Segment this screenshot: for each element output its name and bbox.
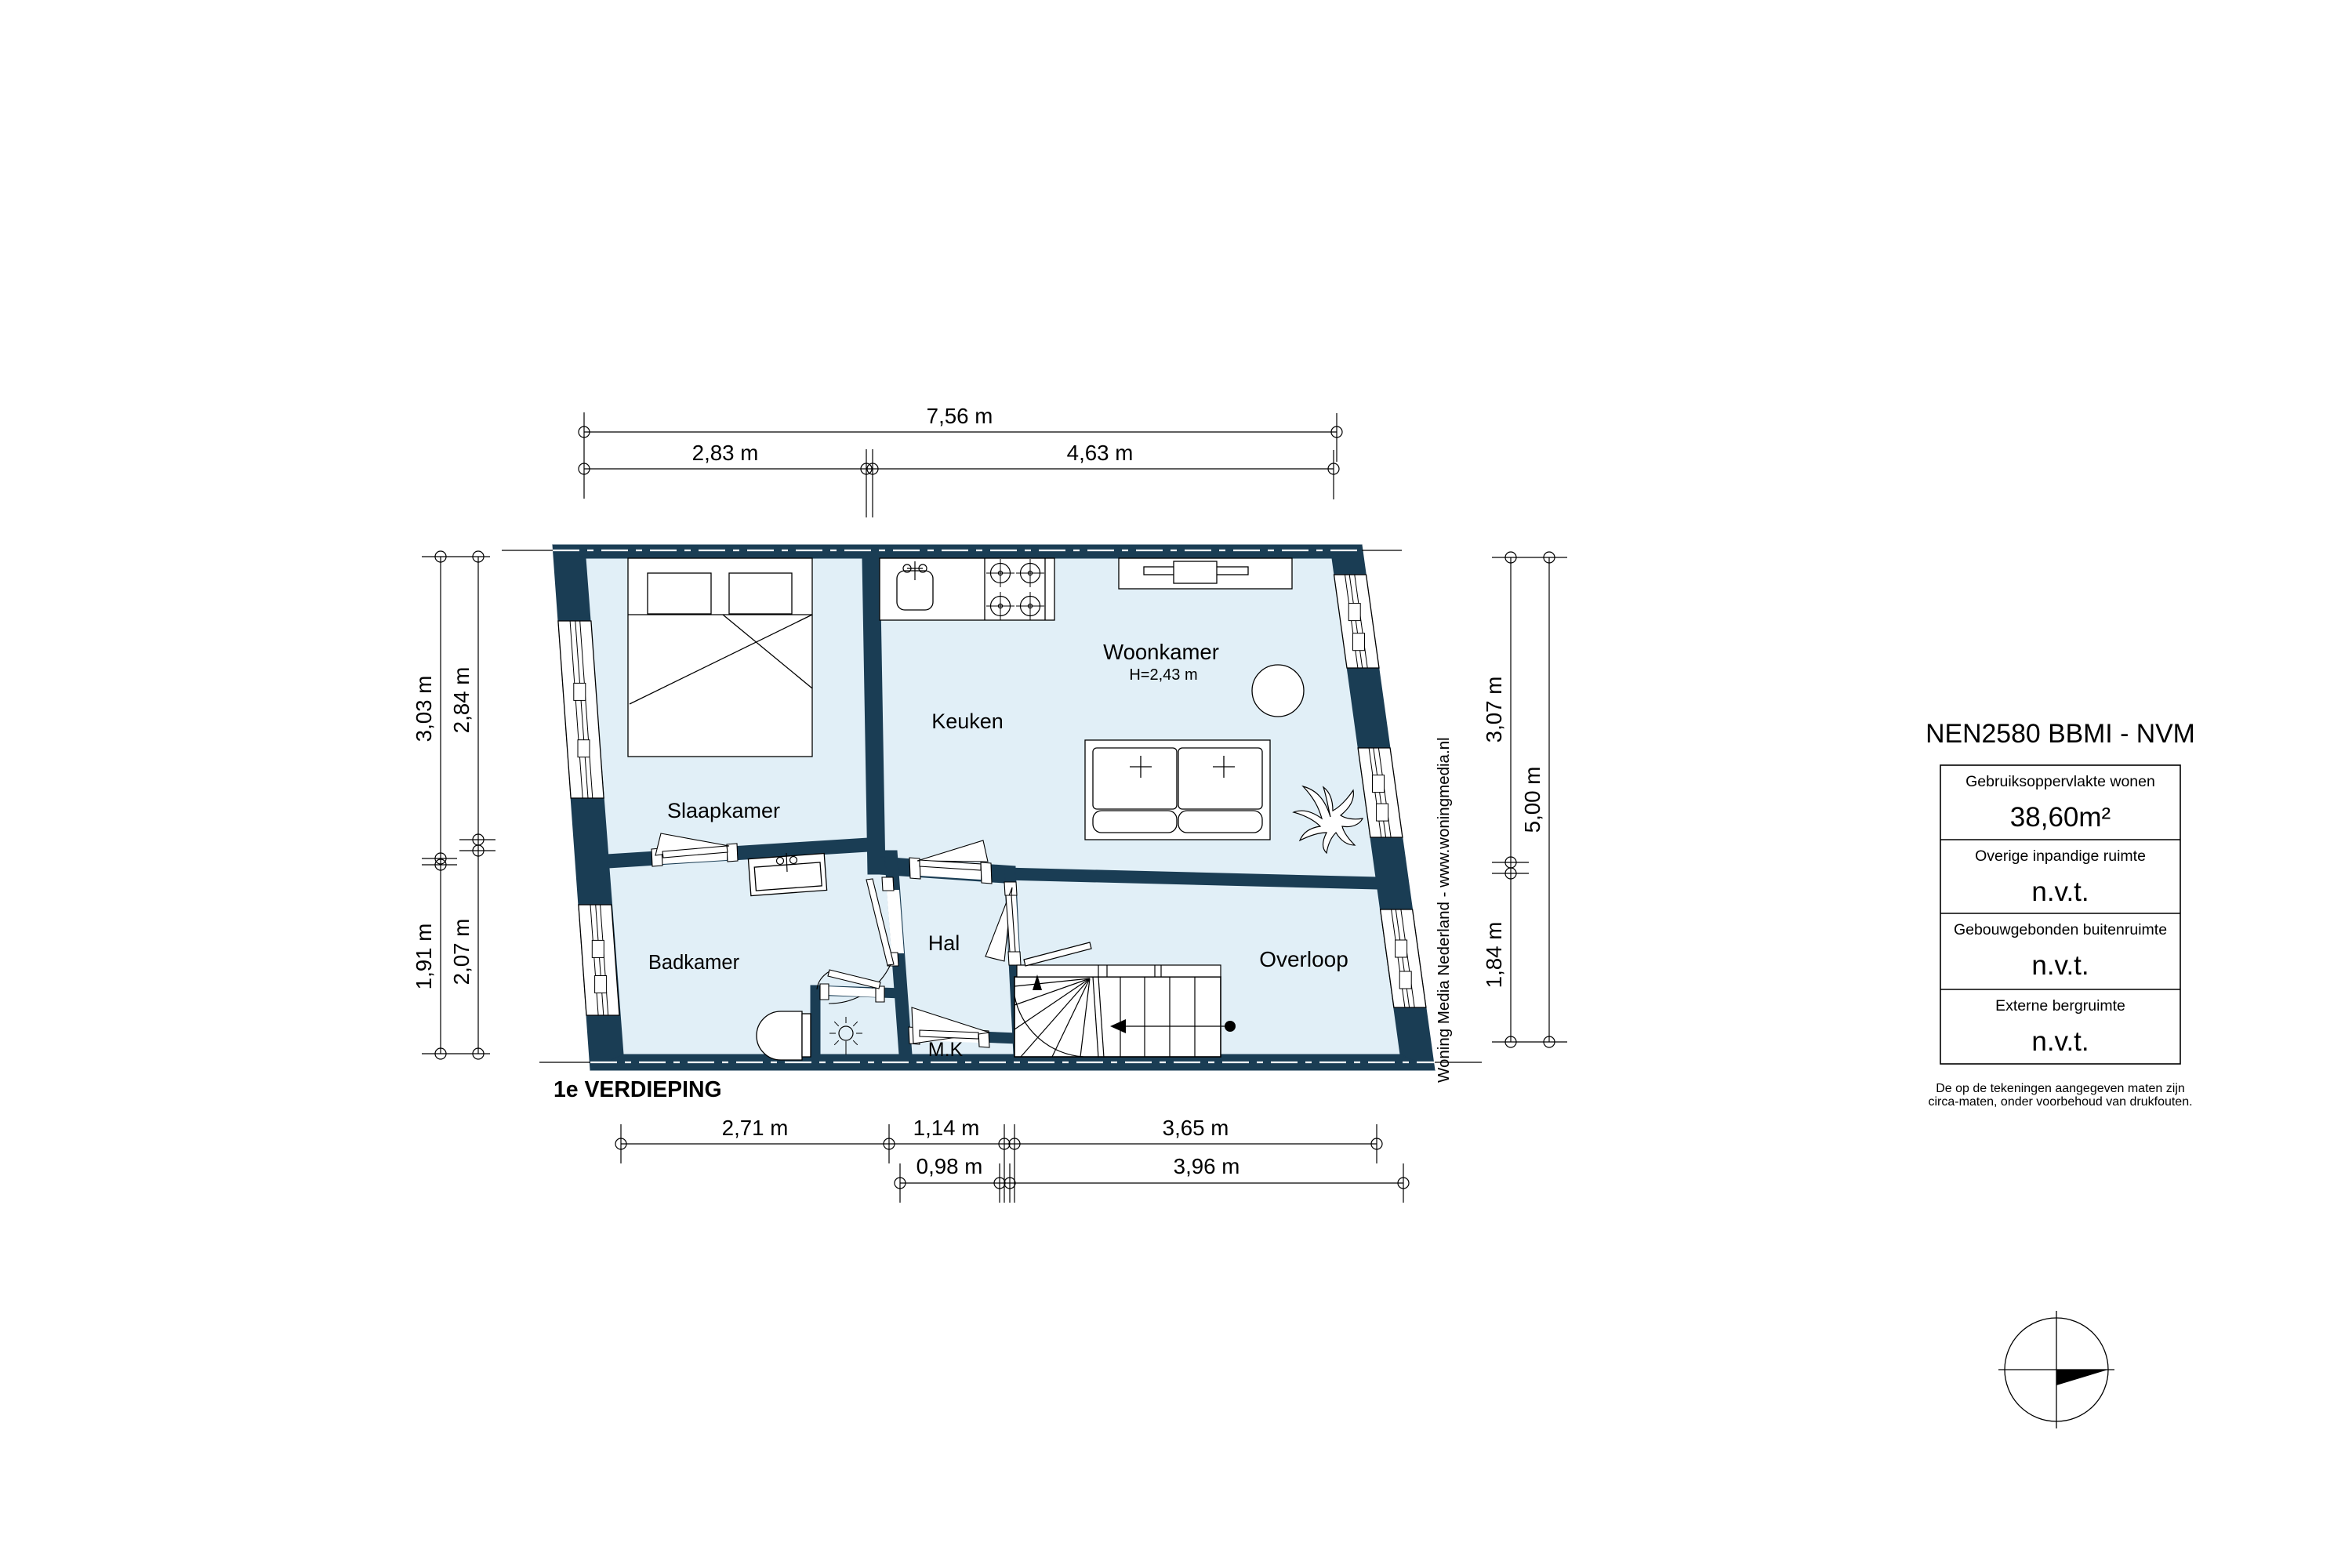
svg-text:Gebruiksoppervlakte wonen: Gebruiksoppervlakte wonen xyxy=(1965,773,2155,790)
svg-text:1,14 m: 1,14 m xyxy=(913,1116,980,1140)
svg-text:Woonkamer: Woonkamer xyxy=(1103,640,1219,664)
svg-text:1,84 m: 1,84 m xyxy=(1482,922,1506,989)
svg-text:Keuken: Keuken xyxy=(931,710,1004,733)
svg-text:2,83 m: 2,83 m xyxy=(692,441,759,465)
svg-text:n.v.t.: n.v.t. xyxy=(2031,950,2089,981)
svg-text:2,71 m: 2,71 m xyxy=(722,1116,789,1140)
svg-text:5,00 m: 5,00 m xyxy=(1520,767,1544,833)
svg-text:Gebouwgebonden buitenruimte: Gebouwgebonden buitenruimte xyxy=(1954,921,2167,938)
svg-text:7,56 m: 7,56 m xyxy=(927,404,993,428)
svg-text:0,98 m: 0,98 m xyxy=(916,1154,983,1178)
svg-text:38,60m²: 38,60m² xyxy=(2010,802,2111,833)
svg-text:1,91 m: 1,91 m xyxy=(412,924,436,990)
svg-text:Externe bergruimte: Externe bergruimte xyxy=(1995,997,2125,1014)
svg-text:H=2,43 m: H=2,43 m xyxy=(1129,666,1197,684)
svg-text:n.v.t.: n.v.t. xyxy=(2031,1026,2089,1057)
svg-text:3,65 m: 3,65 m xyxy=(1163,1116,1229,1140)
svg-text:NEN2580 BBMI - NVM: NEN2580 BBMI - NVM xyxy=(1926,719,2195,749)
svg-text:2,07 m: 2,07 m xyxy=(449,919,474,985)
svg-text:4,63 m: 4,63 m xyxy=(1067,441,1134,465)
svg-text:3,96 m: 3,96 m xyxy=(1174,1154,1240,1178)
svg-text:2,84 m: 2,84 m xyxy=(449,667,474,734)
svg-text:3,07 m: 3,07 m xyxy=(1482,677,1506,743)
svg-text:Badkamer: Badkamer xyxy=(648,952,740,974)
svg-text:Overige inpandige ruimte: Overige inpandige ruimte xyxy=(1975,848,2146,865)
svg-text:n.v.t.: n.v.t. xyxy=(2031,877,2089,907)
svg-text:Slaapkamer: Slaapkamer xyxy=(667,799,780,822)
svg-text:circa-maten, onder voorbehoud: circa-maten, onder voorbehoud van drukfo… xyxy=(1928,1095,2192,1109)
svg-text:De op de tekeningen aangegeven: De op de tekeningen aangegeven maten zij… xyxy=(1936,1082,2185,1095)
svg-text:Woning Media Nederland - www.w: Woning Media Nederland - www.woningmedia… xyxy=(1435,737,1453,1083)
svg-text:Hal: Hal xyxy=(928,931,960,955)
svg-text:1e VERDIEPING: 1e VERDIEPING xyxy=(554,1077,722,1102)
svg-text:M.K: M.K xyxy=(928,1039,964,1061)
svg-text:Overloop: Overloop xyxy=(1259,947,1348,971)
svg-text:3,03 m: 3,03 m xyxy=(412,676,436,742)
